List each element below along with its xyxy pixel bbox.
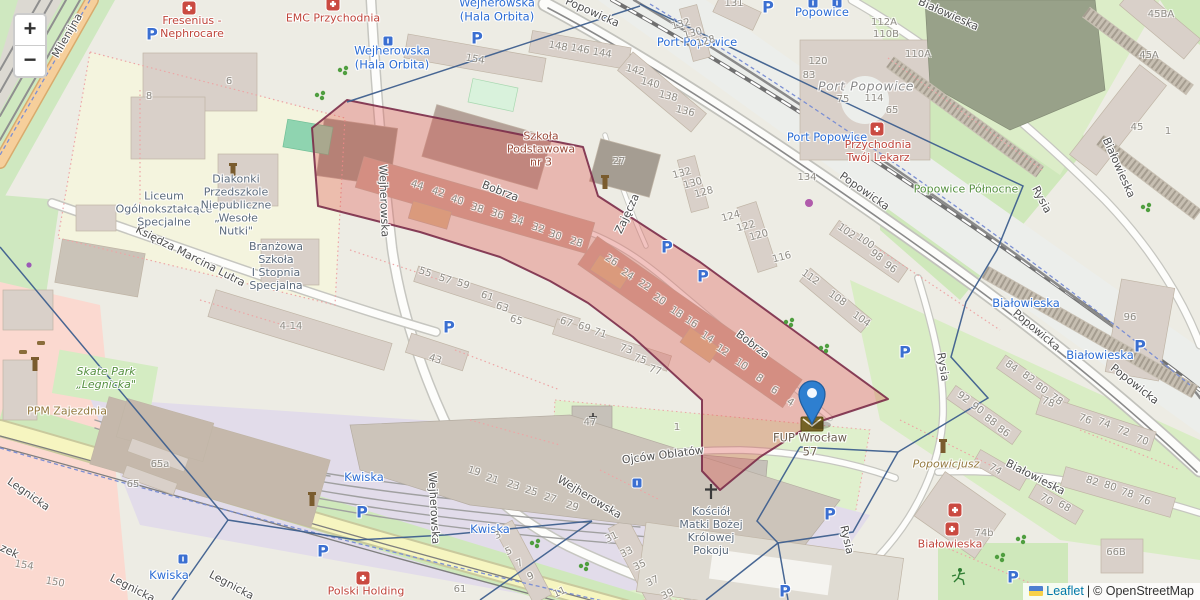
housenumber-label: 14 (698, 330, 715, 347)
housenumber-label: 98 (867, 248, 884, 265)
housenumber-label: 30 (547, 228, 563, 243)
place-label: Szkoła Podstawowa nr 3 (507, 131, 575, 170)
housenumber-label: 65 (127, 479, 140, 491)
street-name-label: Wejherowska (375, 165, 390, 238)
street-name-label: Popowicka (837, 170, 892, 214)
parking-icon: P (779, 583, 791, 600)
housenumber-label: 29 (564, 499, 580, 514)
housenumber-label: 18 (667, 305, 684, 322)
education-label: Diakonki Przedszkole Niepubliczne „Wesoł… (201, 174, 272, 239)
housenumber-label: 114 (864, 93, 883, 105)
housenumber-label: 34 (509, 213, 525, 228)
housenumber-label: 154 (14, 559, 35, 574)
place-label: Popowice Północne (914, 184, 1019, 197)
housenumber-label: 39 (660, 587, 677, 600)
street-name-label: Księdza Marcina Lutra (133, 224, 247, 291)
housenumber-label: 122 (735, 219, 756, 235)
street-name-label: Popowicka (1010, 307, 1063, 354)
housenumber-label: 104 (850, 310, 872, 331)
healthcare-label: Fresenius - Nephrocare (160, 15, 224, 41)
housenumber-label: 80 (1032, 381, 1049, 398)
street-name-label: Białowieska (916, 0, 980, 34)
parking-icon: P (471, 30, 483, 49)
map-canvas[interactable]: MilenijnaWejherowskaWejherowskaWejherows… (0, 0, 1200, 600)
housenumber-label: 110B (873, 29, 899, 41)
housenumber-label: 120 (808, 56, 827, 68)
housenumber-label: 136 (674, 104, 695, 120)
housenumber-label: 12 (713, 343, 730, 360)
housenumber-label: 28 (568, 235, 584, 250)
leaflet-link[interactable]: Leaflet (1046, 584, 1084, 598)
housenumber-label: 72 (1115, 424, 1131, 439)
housenumber-label: 10 (732, 357, 749, 374)
housenumber-label: 59 (455, 277, 471, 292)
housenumber-label: 47 (584, 417, 597, 429)
housenumber-label: 23 (505, 478, 521, 493)
transit-stop-label: Kwiska (344, 471, 384, 485)
transit-stop-label: Port Popowice (787, 131, 867, 145)
housenumber-label: 61 (479, 289, 495, 304)
street-name-label: Rysia (933, 352, 950, 383)
housenumber-label: 132 (671, 166, 692, 182)
housenumber-label: 37 (645, 574, 662, 590)
housenumber-label: 3 (493, 529, 504, 542)
street-name-label: Popowicka (563, 0, 621, 31)
housenumber-label: 26 (602, 253, 619, 270)
housenumber-label: 40 (449, 193, 465, 208)
street-name-label: Bobrza (733, 328, 771, 361)
housenumber-label: 27 (613, 156, 626, 168)
housenumber-label: 154 (465, 53, 486, 68)
parking-icon: P (1007, 569, 1019, 588)
housenumber-label: 20 (650, 292, 667, 309)
housenumber-label: 78 (1119, 486, 1135, 501)
place-label: PPM Zajezdnia (27, 406, 107, 419)
transit-stop-label: Kwiska (149, 569, 189, 583)
housenumber-label: 92 (954, 390, 971, 407)
street-name-label: Zajęcza (613, 192, 643, 236)
housenumber-label: 22 (635, 278, 652, 295)
housenumber-label: 140 (639, 76, 660, 92)
housenumber-label: 84 (1002, 359, 1019, 376)
parking-icon: P (697, 268, 709, 287)
housenumber-label: 68 (1056, 499, 1073, 516)
street-name-label: Legnicka (4, 476, 51, 515)
healthcare-label: Przychodnia Twój Lekarz (845, 139, 912, 165)
housenumber-label: 142 (624, 63, 645, 79)
healthcare-label: Polski Holding (328, 586, 405, 599)
housenumber-label: 69 (576, 320, 592, 335)
transit-stop-label: Wejherowska (Hala Orbita) (354, 44, 430, 71)
housenumber-label: 33 (619, 545, 636, 561)
housenumber-label: 42 (430, 185, 446, 200)
housenumber-label: 32 (530, 221, 546, 236)
housenumber-label: 44 (409, 178, 425, 193)
housenumber-label: 19 (466, 464, 482, 479)
housenumber-label: 128 (695, 34, 716, 50)
housenumber-label: 24 (618, 267, 635, 284)
parking-icon: P (762, 0, 774, 17)
place-label: Skate Park „Legnicka" (76, 366, 136, 392)
housenumber-label: 67 (558, 315, 574, 330)
transit-stop-label: Białowieska (1066, 349, 1134, 363)
street-name-label: zek (0, 542, 20, 562)
zoom-out-button[interactable]: − (15, 46, 45, 76)
housenumber-label: 57 (437, 272, 453, 287)
housenumber-label: 27 (542, 491, 558, 506)
education-label: Liceum Ogólnokształcące Specjalne (116, 191, 213, 230)
housenumber-label: 21 (484, 472, 500, 487)
housenumber-label: 65 (508, 313, 524, 328)
street-name-label: Bobrza (480, 179, 520, 205)
housenumber-label: 128 (693, 185, 714, 201)
housenumber-label: 61 (454, 584, 467, 596)
housenumber-label: 82 (1019, 370, 1036, 387)
housenumber-label: 65a (151, 459, 170, 471)
transit-stop-label: Kwiska (470, 523, 510, 537)
transit-stop-label: Popowice (795, 6, 849, 20)
parking-icon: P (1134, 338, 1146, 357)
housenumber-label: 80 (1102, 479, 1118, 494)
street-name-label: Milenijna (50, 11, 86, 60)
housenumber-label: 116 (771, 250, 792, 266)
housenumber-label: 96 (1124, 312, 1137, 324)
housenumber-label: 8 (753, 372, 765, 385)
housenumber-label: 55 (417, 265, 433, 280)
parking-icon: P (317, 543, 329, 562)
housenumber-label: 124 (720, 209, 741, 225)
housenumber-label: 70 (1038, 492, 1055, 509)
housenumber-label: 43 (427, 352, 443, 367)
housenumber-label: 148 (548, 40, 569, 55)
parking-icon: P (146, 26, 158, 45)
housenumber-label: 100 (854, 232, 876, 253)
ukraine-flag-icon (1029, 586, 1043, 596)
zoom-in-button[interactable]: + (15, 15, 45, 46)
housenumber-label: 112A (871, 17, 897, 29)
transit-stop-label: Wejherowska (Hala Orbita) (459, 0, 535, 24)
housenumber-label: 8 (146, 91, 152, 103)
housenumber-label: 76 (1136, 493, 1152, 508)
housenumber-label: 132 (670, 17, 691, 33)
place-label: Popowicjusz (913, 459, 980, 472)
parking-icon: P (899, 344, 911, 363)
housenumber-label: 71 (592, 326, 608, 341)
attribution-bar: Leaflet|© OpenStreetMap (1023, 583, 1200, 600)
housenumber-label: 77 (647, 363, 663, 378)
parking-icon: P (443, 319, 455, 338)
housenumber-label: 131 (724, 0, 743, 10)
housenumber-label: 45 (1131, 122, 1144, 134)
housenumber-label: 134 (797, 172, 816, 184)
osm-link[interactable]: © OpenStreetMap (1093, 584, 1194, 598)
housenumber-label: 88 (981, 413, 998, 430)
housenumber-label: 11 (552, 585, 569, 600)
housenumber-label: 120 (748, 228, 769, 244)
parking-icon: P (824, 506, 836, 525)
transit-stop-label: Port Popowice (657, 36, 737, 50)
housenumber-label: 78 (1047, 392, 1064, 409)
housenumber-label: 78 (1040, 395, 1056, 410)
housenumber-label: 74 (1096, 416, 1112, 431)
housenumber-label: 16 (682, 315, 699, 332)
parking-icon: P (661, 239, 673, 258)
housenumber-label: 35 (632, 558, 649, 574)
housenumber-label: 45BA (1148, 9, 1174, 21)
street-name-label: Białowieska (1003, 458, 1067, 499)
housenumber-label: 1 (1165, 126, 1171, 138)
housenumber-label: 96 (881, 260, 898, 277)
housenumber-label: 90 (968, 401, 985, 418)
housenumber-label: 82 (1084, 474, 1100, 489)
housenumber-label: 76 (1077, 412, 1093, 427)
housenumber-label: 4 (784, 396, 796, 409)
place-label: Kościół Matki Bożej Królowej Pokoju (679, 506, 742, 558)
housenumber-label: 9 (526, 570, 537, 583)
healthcare-label: Białowieska (918, 539, 983, 552)
place-label: FUP Wrocław 57 (773, 431, 847, 458)
housenumber-label: 130 (682, 176, 703, 192)
housenumber-label: 73 (618, 342, 634, 357)
housenumber-label: 146 (570, 43, 591, 58)
housenumber-label: 1 (674, 422, 680, 434)
street-name-label: Popowicka (1107, 362, 1160, 408)
housenumber-label: 36 (489, 207, 505, 222)
osm-attribution: © OpenStreetMap (1093, 584, 1194, 598)
housenumber-label: 6 (226, 76, 232, 88)
housenumber-label: 75 (837, 94, 850, 106)
housenumber-label: 6 (768, 384, 780, 397)
place-label: Port Popowice (818, 80, 914, 95)
housenumber-label: 112 (799, 268, 821, 289)
housenumber-label: 70 (1134, 433, 1150, 448)
healthcare-label: EMC Przychodnia (286, 13, 380, 26)
education-label: Branżowa Szkoła I Stopnia Specjalna (249, 241, 303, 293)
housenumber-label: 108 (826, 289, 848, 310)
housenumber-label: 4-14 (280, 321, 303, 333)
zoom-control: + − (13, 13, 47, 78)
housenumber-label: 86 (994, 424, 1011, 441)
housenumber-label: 7 (515, 557, 526, 570)
street-name-label: Rysia (836, 524, 855, 555)
housenumber-label: 65 (886, 105, 899, 117)
housenumber-label: 45A (1139, 50, 1159, 62)
housenumber-label: 25 (523, 484, 539, 499)
street-name-label: Wejherowska (425, 471, 442, 544)
housenumber-label: 31 (604, 530, 621, 546)
attribution-separator: | (1087, 584, 1090, 598)
housenumber-label: 74 (987, 462, 1004, 479)
transit-stop-label: Białowieska (992, 297, 1060, 311)
housenumber-label: 38 (469, 201, 485, 216)
housenumber-label: 75 (632, 352, 648, 367)
street-name-label: Ojców Oblatów (621, 445, 704, 468)
housenumber-label: 5 (504, 545, 515, 558)
housenumber-label: 138 (657, 89, 678, 105)
housenumber-label: 63 (494, 300, 510, 315)
housenumber-label: 74b (974, 528, 993, 540)
street-name-label: Wejherowska (555, 474, 624, 522)
labels-layer: MilenijnaWejherowskaWejherowskaWejherows… (0, 0, 1200, 600)
street-name-label: Legnicka (107, 572, 156, 600)
housenumber-label: 150 (45, 576, 66, 591)
housenumber-label: 102 (835, 222, 857, 243)
street-name-label: Legnicka (206, 569, 255, 600)
street-name-label: Rysia (1028, 184, 1053, 216)
housenumber-label: 83 (803, 70, 816, 82)
parking-icon: P (356, 504, 368, 523)
street-name-label: Białowieska (1099, 136, 1137, 200)
housenumber-label: 110A (905, 49, 931, 61)
housenumber-label: 130 (682, 26, 703, 42)
housenumber-label: 144 (592, 47, 613, 62)
housenumber-label: 66B (1106, 547, 1126, 559)
